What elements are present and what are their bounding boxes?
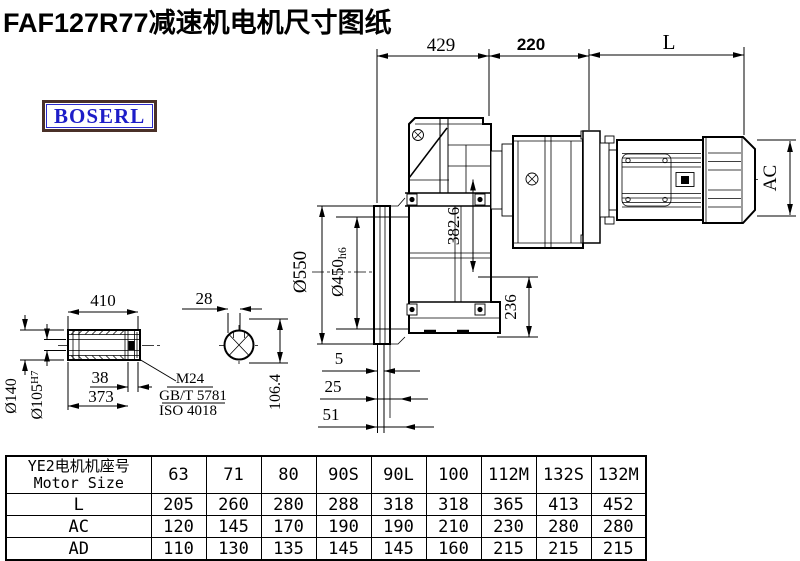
table-cell: 280 xyxy=(261,494,316,516)
table-cell: 190 xyxy=(371,516,426,538)
dim-dia105-tolerance: H7 xyxy=(29,370,41,384)
header-motor-size-en: Motor Size xyxy=(7,475,151,492)
table-header-row: YE2电机机座号 Motor Size 63 71 80 90S 90L 100… xyxy=(6,456,646,494)
dim-dia105-value: Ø105 xyxy=(29,384,46,420)
row-label: L xyxy=(6,494,151,516)
column-header: 90L xyxy=(371,456,426,494)
dim-5-label: 5 xyxy=(335,349,344,368)
table-cell: 413 xyxy=(536,494,591,516)
table-cell: 318 xyxy=(371,494,426,516)
bolt-icon xyxy=(477,197,482,202)
table-cell: 230 xyxy=(481,516,536,538)
column-header: 112M xyxy=(481,456,536,494)
dim-373-label: 373 xyxy=(88,387,114,406)
table-cell: 260 xyxy=(206,494,261,516)
column-header: 132M xyxy=(591,456,646,494)
table-cell: 365 xyxy=(481,494,536,516)
dim-38-label: 38 xyxy=(92,368,109,387)
input-gear-stage xyxy=(491,131,617,248)
note-gbt-label: GB/T 5781 xyxy=(159,388,227,404)
table-cell: 288 xyxy=(316,494,371,516)
note-iso-label: ISO 4018 xyxy=(159,403,217,419)
note-m24-label: M24 xyxy=(176,371,205,387)
bolt-icon xyxy=(409,197,414,202)
table-cell: 318 xyxy=(426,494,481,516)
dim-106-label: 106.4 xyxy=(267,374,284,410)
table-cell: 120 xyxy=(151,516,206,538)
dim-L-label: L xyxy=(663,30,676,54)
bolt-icon xyxy=(477,307,482,312)
table-row-AC: AC 120 145 170 190 190 210 230 280 280 xyxy=(6,516,646,538)
header-motor-size: YE2电机机座号 Motor Size xyxy=(6,456,151,494)
technical-drawing: 429 220 L xyxy=(0,0,800,455)
motor-size-table: YE2电机机座号 Motor Size 63 71 80 90S 90L 100… xyxy=(5,455,647,561)
dim-28-label: 28 xyxy=(196,289,213,308)
column-header: 71 xyxy=(206,456,261,494)
dim-dia140-label: Ø140 xyxy=(3,378,20,414)
column-header: 100 xyxy=(426,456,481,494)
dim-382-label: 382.6 xyxy=(444,207,463,245)
column-header: 63 xyxy=(151,456,206,494)
table-cell: 205 xyxy=(151,494,206,516)
dim-dia450-label: Ø450h6 xyxy=(328,247,349,297)
output-flange xyxy=(374,198,409,433)
dim-dia450-value: Ø450 xyxy=(328,259,347,297)
column-header: 90S xyxy=(316,456,371,494)
table-cell: 452 xyxy=(591,494,646,516)
motor-fan-cover xyxy=(703,137,755,223)
bolt-icon xyxy=(409,307,414,312)
keyway-block xyxy=(129,341,135,350)
table-cell: 190 xyxy=(316,516,371,538)
table-cell: 280 xyxy=(536,516,591,538)
bottom-step-dims: 5 25 51 xyxy=(318,349,434,427)
shaft-detail-view: 410 Ø140 Ø105H7 xyxy=(3,291,227,420)
dim-51-label: 51 xyxy=(323,405,340,424)
page: { "page": {"title": "FAF127R77减速机电机尺寸图纸"… xyxy=(0,0,800,557)
header-motor-size-cn: YE2电机机座号 xyxy=(7,458,151,475)
table-row-L: L 205 260 280 288 318 318 365 413 452 xyxy=(6,494,646,516)
dim-25-label: 25 xyxy=(325,377,342,396)
table-cell: 170 xyxy=(261,516,316,538)
dim-dia550-label: Ø550 xyxy=(290,251,311,293)
table-cell: 210 xyxy=(426,516,481,538)
dim-429-label: 429 xyxy=(427,35,456,56)
dim-236-label: 236 xyxy=(501,294,520,320)
motor xyxy=(617,137,755,223)
column-header: 80 xyxy=(261,456,316,494)
table-cell: 145 xyxy=(206,516,261,538)
dim-dia450-tolerance: h6 xyxy=(335,247,349,259)
row-label: AC xyxy=(6,516,151,538)
dim-220-label: 220 xyxy=(517,35,545,54)
column-header: 132S xyxy=(536,456,591,494)
table-cell: 280 xyxy=(591,516,646,538)
dim-AC-label: AC xyxy=(760,165,781,191)
dim-dia105-label: Ø105H7 xyxy=(29,370,46,420)
dim-410-label: 410 xyxy=(90,291,116,310)
